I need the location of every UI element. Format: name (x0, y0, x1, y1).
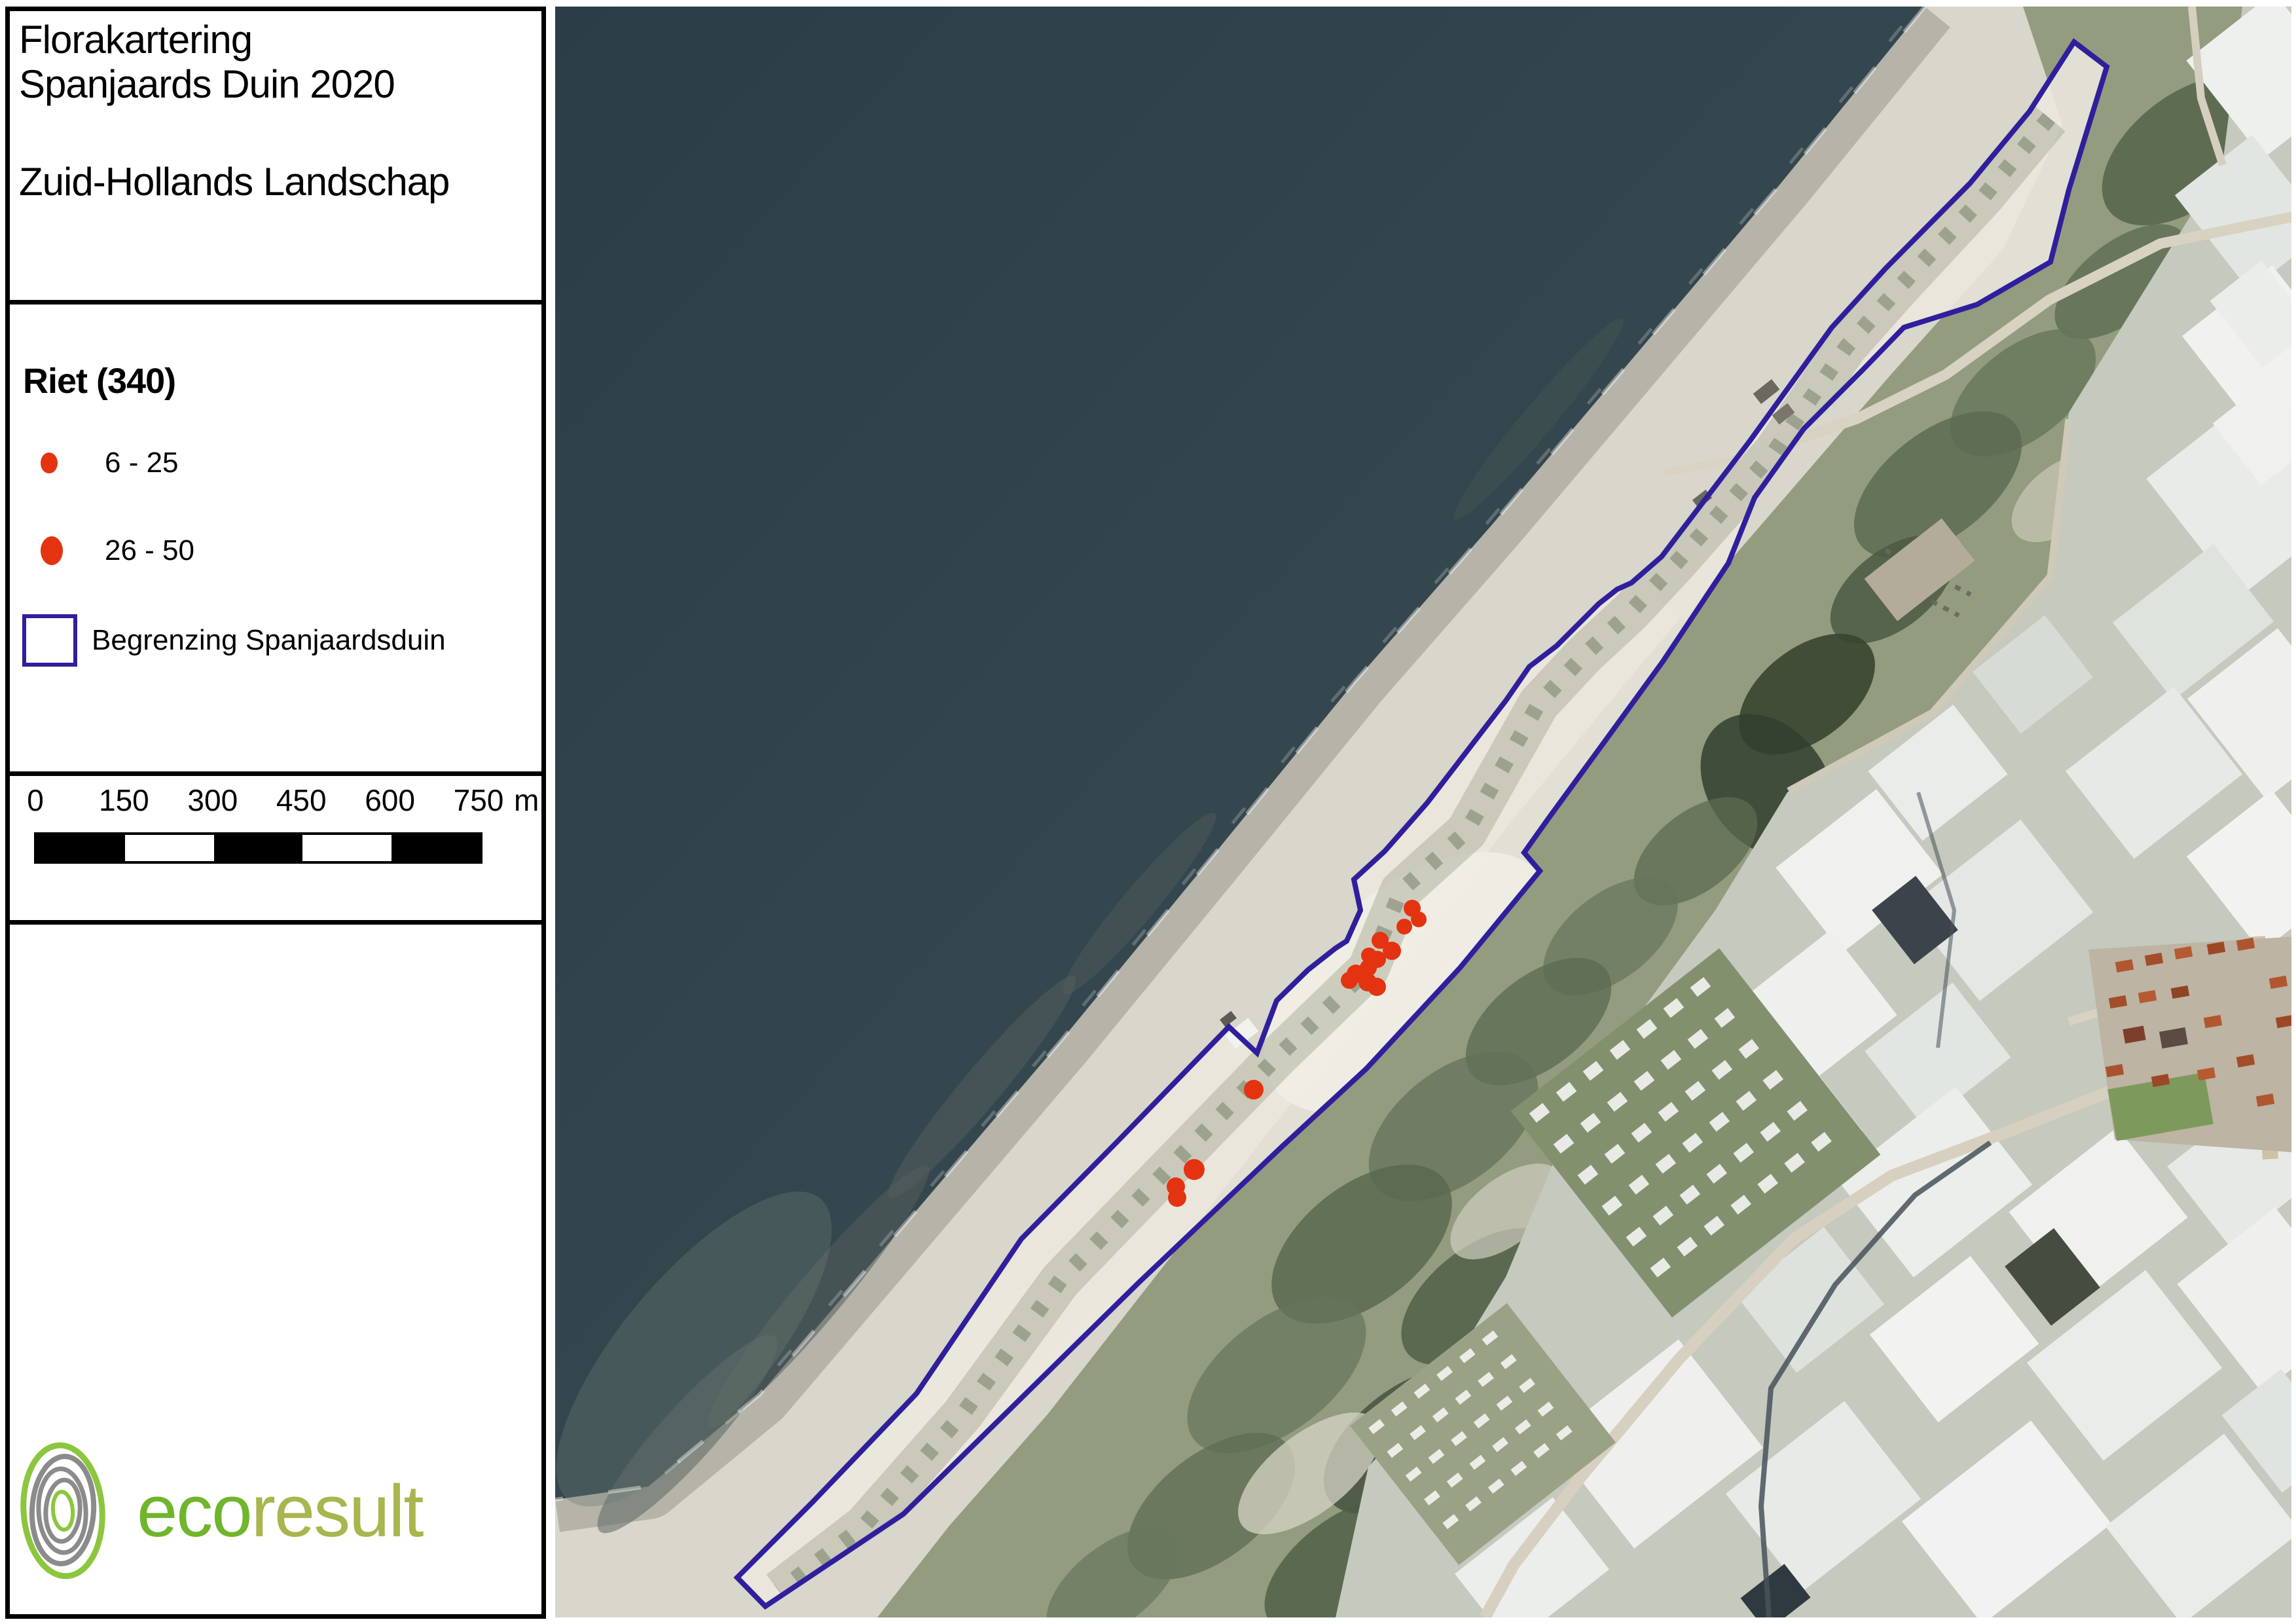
legend-boundary-swatch-icon (22, 614, 77, 667)
scalebar-block: 0150300450600750m (10, 776, 541, 925)
observation-dot (1341, 972, 1358, 989)
scalebar-unit-label: m (514, 783, 539, 818)
legend-item-small-class: 6 - 25 (41, 442, 541, 484)
scalebar-tick-label: 600 (365, 783, 415, 818)
ecoresult-wordmark: ecoresult (137, 1469, 422, 1553)
observation-dot (1368, 978, 1386, 996)
scalebar (34, 832, 483, 864)
legend-dot-large-icon (41, 536, 63, 565)
scalebar-segment (37, 835, 125, 861)
scalebar-segment (125, 835, 213, 861)
scalebar-segment (392, 835, 480, 861)
observation-dot (1411, 912, 1427, 927)
scalebar-tick-label: 450 (276, 783, 327, 818)
logo-text-result: result (251, 1470, 423, 1552)
title-block: Florakartering Spanjaards Duin 2020 Zuid… (10, 11, 541, 304)
map-canvas (555, 7, 2291, 1617)
observation-dot (1184, 1159, 1205, 1180)
map-subtitle: Zuid-Hollands Landschap (19, 159, 535, 204)
observation-dot (1244, 1080, 1264, 1099)
scalebar-labels: 0150300450600750m (20, 783, 537, 817)
scalebar-tick-label: 150 (99, 783, 149, 818)
info-panel: Florakartering Spanjaards Duin 2020 Zuid… (5, 7, 546, 1619)
legend-dot-small-icon (41, 452, 58, 473)
legend-item-label: 26 - 50 (105, 534, 194, 567)
legend-block: Riet (340) 6 - 25 26 - 50 Begrenzing Spa… (10, 304, 541, 776)
ecoresult-rings-icon (14, 1441, 112, 1581)
ecoresult-logo: ecoresult (14, 1441, 422, 1581)
legend-item-large-class: 26 - 50 (41, 526, 541, 576)
logo-text-eco: eco (137, 1470, 251, 1552)
scalebar-segment (302, 835, 391, 861)
scalebar-segment (214, 835, 302, 861)
logo-block: ecoresult (10, 925, 541, 1614)
legend-item-boundary: Begrenzing Spanjaardsduin (22, 612, 541, 669)
scalebar-tick-label: 0 (27, 783, 44, 818)
legend-item-label: Begrenzing Spanjaardsduin (92, 624, 446, 657)
scalebar-tick-label: 300 (187, 783, 238, 818)
aerial-map (555, 7, 2291, 1617)
observation-dot (1168, 1189, 1186, 1207)
legend-heading: Riet (340) (23, 361, 541, 401)
observation-dot (1396, 919, 1412, 934)
map-sheet: { "panel": { "title_lines": ["Florakarte… (0, 0, 2296, 1624)
map-title-line-2: Spanjaards Duin 2020 (19, 62, 535, 107)
map-title-line-1: Florakartering (19, 18, 535, 62)
village-region (2088, 936, 2291, 1153)
legend-item-label: 6 - 25 (105, 447, 179, 479)
scalebar-tick-label: 750 (454, 783, 504, 818)
